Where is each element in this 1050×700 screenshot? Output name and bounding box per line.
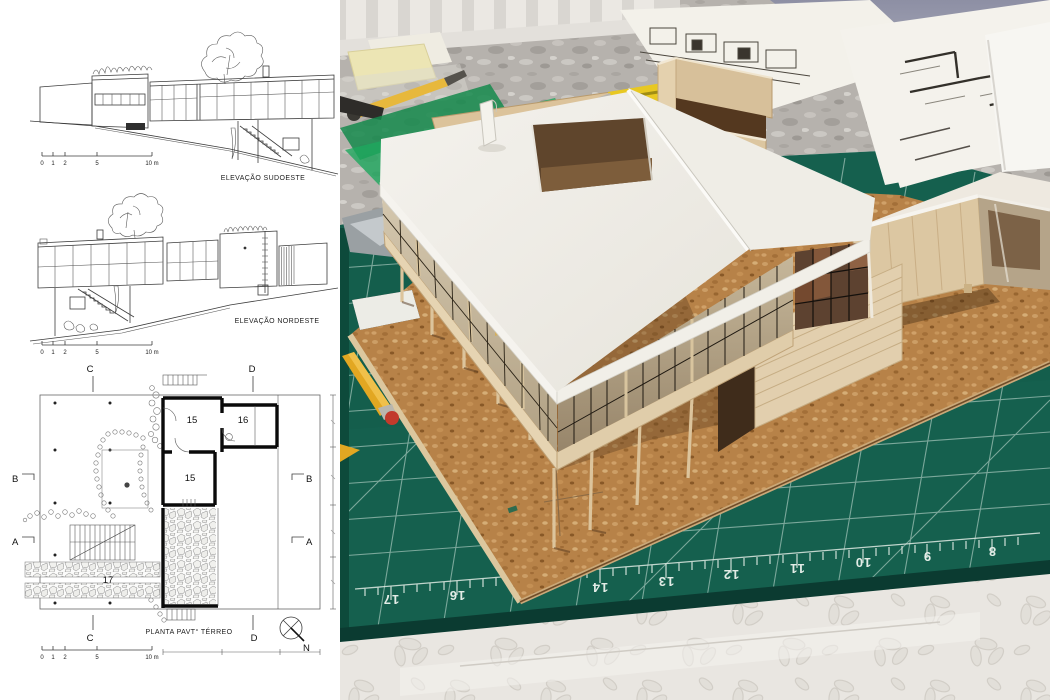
photo-svg: 17 16 14 13 12 11 10 9 8 — [340, 0, 1050, 700]
annex-glazed-interior — [988, 210, 1040, 270]
mat-number: 13 — [658, 574, 674, 589]
trunk — [231, 128, 236, 159]
rock — [300, 155, 309, 163]
scale-tick-label: 1 — [51, 350, 55, 356]
annex-foot — [964, 284, 972, 293]
section-marker-a-left: A — [12, 537, 19, 548]
scale-tick-label: 10 m — [145, 655, 158, 661]
chimney — [97, 230, 103, 239]
pilotis-and-stair — [55, 286, 134, 336]
pilotis-and-stair — [231, 119, 312, 170]
elevation-ne-caption: ELEVAÇÃO NORDESTE — [235, 316, 320, 325]
dimension-line-bottom — [163, 649, 320, 655]
scale-tick-label: 10 m — [145, 161, 158, 167]
stone-strip-1 — [25, 562, 160, 577]
section-marker-d-bottom: D — [251, 633, 258, 644]
scale-tick-label: 0 — [40, 350, 44, 356]
stone-terrace — [165, 508, 216, 604]
room-label-17: 17 — [103, 575, 114, 586]
mat-number: 10 — [855, 555, 871, 570]
drawings-panel: 0 1 2 5 10 m ELEVAÇÃO SUDOESTE — [0, 0, 340, 700]
basement-window — [126, 123, 145, 130]
ground-line-2 — [33, 308, 230, 344]
scale-tick-label: 2 — [63, 350, 67, 356]
section-marker-b-left: B — [12, 474, 18, 485]
stone-strip-2 — [25, 583, 160, 598]
north-label: N — [303, 643, 310, 654]
entry-steps-top — [163, 375, 207, 385]
elevation-right-volume — [279, 243, 327, 286]
dimension-line-right — [330, 395, 336, 609]
scale-tick-label: 5 — [95, 350, 99, 356]
entry-steps-bottom — [167, 609, 195, 620]
scale-bar-ne: 0 1 2 5 10 m — [40, 341, 158, 356]
scale-tick-label: 0 — [40, 161, 44, 167]
roof-vegetation — [224, 226, 267, 232]
scale-tick-label: 2 — [63, 161, 67, 167]
mat-number: 17 — [383, 592, 399, 607]
roof-vegetation — [93, 66, 152, 74]
north-arrow-icon: N — [280, 617, 310, 654]
scale-tick-label: 0 — [40, 655, 44, 661]
ground-line — [30, 288, 338, 341]
ground-line — [30, 121, 338, 174]
room-label-16: 16 — [238, 415, 249, 426]
scale-tick-label: 5 — [95, 655, 99, 661]
courtyard — [102, 450, 148, 508]
floor-plan-drawing: C D — [12, 364, 336, 661]
section-marker-d-top: D — [249, 364, 256, 375]
section-marker-c-bottom: C — [87, 633, 94, 644]
mat-number: 9 — [923, 549, 931, 564]
mat-number: 12 — [723, 567, 739, 582]
tree-icon — [201, 32, 263, 84]
mat-number: 16 — [449, 588, 465, 603]
mat-left-edge — [340, 228, 349, 632]
scale-tick-label: 10 m — [145, 350, 158, 356]
ground-line-2 — [95, 128, 336, 176]
mat-number: 11 — [789, 561, 805, 576]
elevation-left-glazed-volume — [38, 237, 163, 288]
drawings-svg: 0 1 2 5 10 m ELEVAÇÃO SUDOESTE — [0, 0, 340, 700]
plan-caption: PLANTA PAVT° TÉRREO — [146, 627, 233, 636]
elevation-middle-volume — [167, 240, 218, 281]
chimney — [263, 66, 269, 77]
elevation-left-volume — [40, 83, 92, 125]
elevation-nordeste-drawing: 0 1 2 5 10 m ELEVAÇÃO NORDESTE — [30, 194, 338, 357]
section-marker-b-right: B — [306, 474, 312, 485]
architecture-model-composite: 0 1 2 5 10 m ELEVAÇÃO SUDOESTE — [0, 0, 1050, 700]
scale-tick-label: 1 — [51, 161, 55, 167]
outdoor-stair — [70, 525, 135, 560]
mat-number: 14 — [592, 580, 608, 595]
elevation-middle-volume — [92, 66, 152, 130]
mat-number: 8 — [988, 544, 996, 559]
scale-bar-sw: 0 1 2 5 10 m — [40, 152, 158, 167]
room-label-15b: 15 — [185, 473, 196, 484]
courtyard-opening — [532, 118, 652, 192]
room-label-15a: 15 — [187, 415, 198, 426]
scale-tick-label: 1 — [51, 655, 55, 661]
scale-tick-label: 5 — [95, 161, 99, 167]
elevation-sudoeste-drawing: 0 1 2 5 10 m ELEVAÇÃO SUDOESTE — [30, 32, 338, 182]
tree-icon — [108, 194, 163, 239]
section-marker-c-top: C — [87, 364, 94, 375]
courtyard-tree — [124, 482, 129, 487]
model-photo-panel: 17 16 14 13 12 11 10 9 8 — [340, 0, 1050, 700]
elevation-right-volume — [150, 75, 334, 121]
section-marker-a-right: A — [306, 537, 313, 548]
scale-bar-plan: 0 1 2 5 10 m — [40, 646, 158, 661]
elevation-sw-caption: ELEVAÇÃO SUDOESTE — [221, 173, 305, 182]
scale-tick-label: 2 — [63, 655, 67, 661]
elevation-solid-volume — [220, 226, 277, 295]
